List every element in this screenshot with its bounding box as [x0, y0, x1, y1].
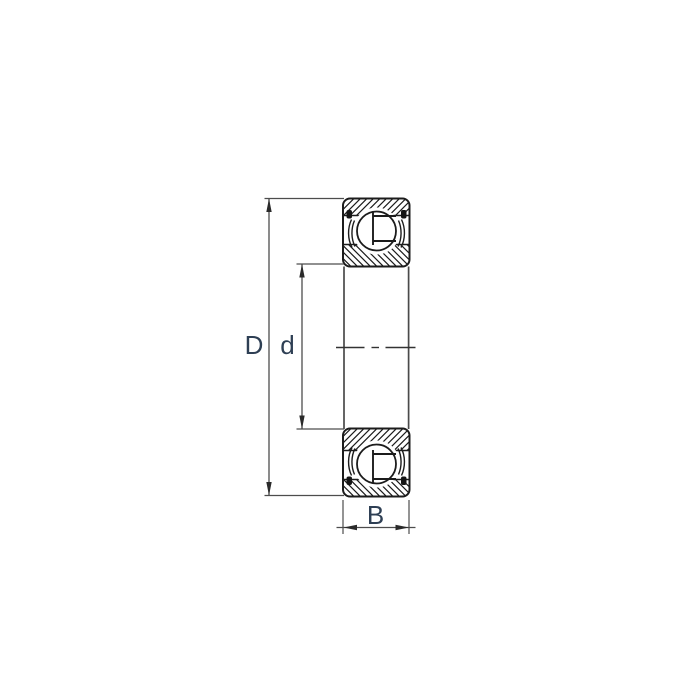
- dimension-D-label: D: [245, 330, 264, 360]
- dimension-B-label: B: [367, 500, 384, 530]
- shield-anchor-right: [401, 210, 407, 219]
- shield-anchor-left: [347, 210, 353, 219]
- bearing-ball: [357, 212, 396, 251]
- drawing-background: [0, 0, 700, 700]
- dimension-d-label: d: [280, 330, 294, 360]
- bearing-drawing-canvas: D d B: [0, 0, 700, 700]
